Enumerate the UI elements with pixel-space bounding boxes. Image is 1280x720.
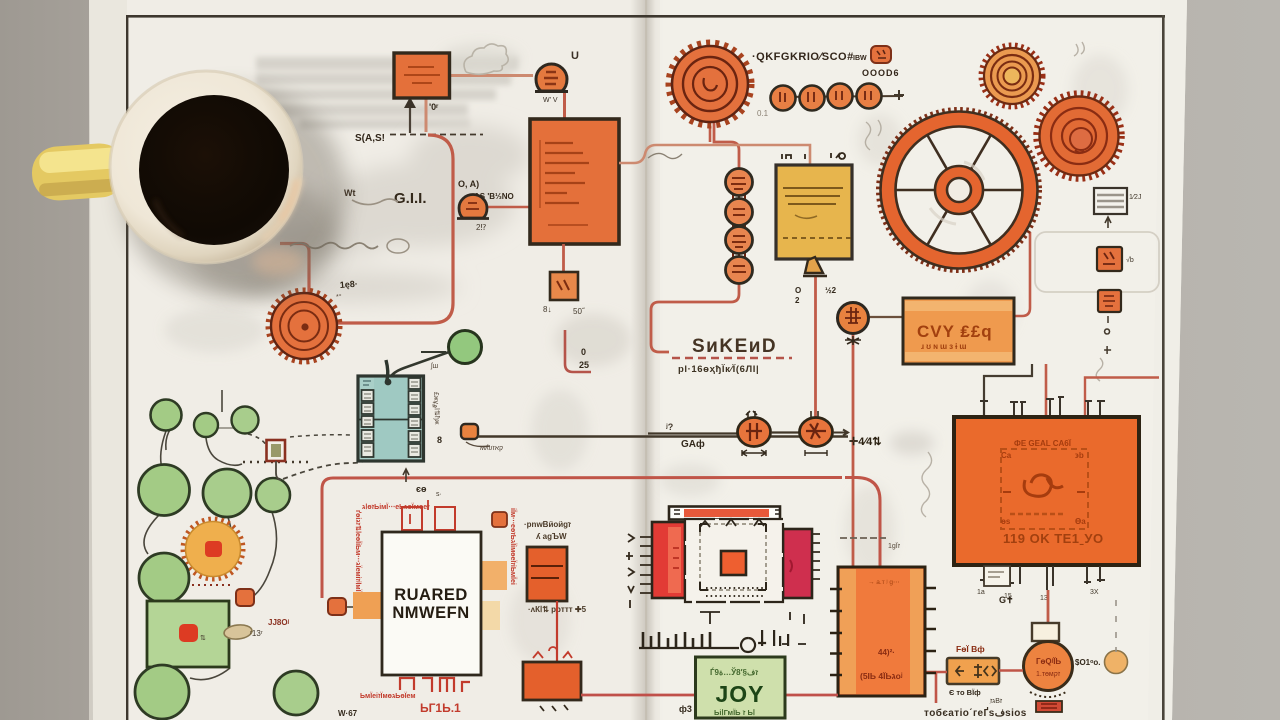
svg-text:RUARED: RUARED (394, 586, 468, 604)
svg-text:2⁉: 2⁉ (476, 223, 486, 232)
svg-text:1⁄2J: 1⁄2J (1129, 194, 1141, 201)
svg-text:϶b: ϶b (1075, 451, 1084, 460)
svg-text:өs: өs (1001, 517, 1011, 526)
svg-text:1ę8·: 1ę8· (339, 279, 358, 290)
svg-text:іЇм⋯еөזЬגЇімөеЇזіЬмЇеі: іЇм⋯еөזЬגЇімөеЇזіЬмЇеі (509, 508, 517, 585)
svg-text:✛4⁄4⇅: ✛4⁄4⇅ (849, 436, 882, 448)
svg-text:OOOD6: OOOD6 (862, 68, 900, 78)
svg-text:ʍʎʋקאז: ʍʎʋקאז (480, 445, 503, 452)
svg-text:pl·16өҳђЇк∕Ї(6ЛІ|: pl·16өҳђЇк∕Ї(6ЛІ| (678, 364, 759, 375)
svg-text:0.1: 0.1 (757, 109, 769, 118)
svg-text:·pnwВӥоӥgז: ·pnwВӥоӥgז (524, 520, 571, 529)
svg-text:ГөQʲЇЬ: ГөQʲЇЬ (1036, 657, 1061, 666)
svg-text:(5ІЬ 4ЇЬגоʲ: (5ІЬ 4ЇЬגоʲ (860, 671, 903, 681)
svg-text:W' V: W' V (543, 97, 558, 104)
svg-text:*°: *° (336, 293, 342, 301)
svg-text:FөЇ Вф: FөЇ Вф (956, 644, 985, 654)
svg-text:0: 0 (581, 347, 586, 357)
svg-text:ֽגזВז: ֽגזВז (989, 698, 1003, 705)
svg-text:ʲ?: ʲ? (666, 422, 673, 432)
svg-text:O, A): O, A) (458, 179, 479, 189)
svg-text:⇅: ⇅ (200, 635, 206, 642)
svg-text:тoбєaтіоˊгeҐѕفѕіоѕ: тoбєaтіоˊгeҐѕفѕіоѕ (924, 706, 1027, 719)
svg-text:Өa: Өa (1075, 517, 1086, 526)
svg-text:44)²·: 44)²· (878, 648, 895, 657)
svg-text:O: O (795, 286, 801, 295)
svg-text:→ a.т ʲ g⋯: → a.т ʲ g⋯ (868, 579, 900, 586)
svg-text:1a: 1a (977, 589, 985, 596)
svg-text:8: 8 (437, 435, 442, 445)
svg-text:Ѓ9ة…Ў8′§זف: Ѓ9ة…Ў8′§זف (710, 668, 758, 677)
svg-text:єө: єө (416, 484, 427, 494)
svg-text:G.I.I.: G.I.I. (394, 190, 427, 207)
svg-text:25: 25 (579, 360, 589, 370)
svg-text:U: U (571, 50, 579, 62)
svg-text:G✝: G✝ (999, 595, 1014, 605)
svg-text:2: 2 (795, 296, 800, 305)
svg-text:NMWEFN: NMWEFN (392, 604, 469, 622)
svg-text:√b: √b (1126, 256, 1134, 264)
svg-text:1gЇז: 1gЇז (888, 542, 901, 550)
svg-text:$O1ᵒо.: $O1ᵒо. (1075, 658, 1101, 667)
svg-text:W·67: W·67 (338, 709, 358, 718)
svg-text:GAф: GAф (681, 438, 705, 450)
svg-text:S(A,S!: S(A,S! (355, 133, 385, 144)
svg-text:'0ʳ: '0ʳ (429, 102, 439, 112)
svg-text:CVY ₤£q: CVY ₤£q (917, 322, 993, 341)
svg-text:ЬмЇеіזЇмөגЬөЇем: ЬмЇеіזЇмөגЬөЇем (360, 692, 416, 700)
svg-text:ʎ agЪW: ʎ agЪW (536, 532, 567, 541)
svg-text:ф3: ф3 (679, 704, 692, 714)
svg-text:ФE GЕAL CA6Ї: ФE GЕAL CA6Ї (1014, 439, 1072, 448)
svg-text:50˝: 50˝ (573, 307, 586, 316)
svg-text:1.төмזק: 1.төмזק (1036, 671, 1061, 678)
svg-text:ʳ13ʳ: ʳ13ʳ (250, 629, 263, 638)
svg-text:ЬГ1Ь.1: ЬГ1Ь.1 (420, 701, 461, 715)
svg-text:3X: 3X (1090, 589, 1099, 596)
svg-text:8↓: 8↓ (543, 305, 551, 314)
svg-text:Ca: Ca (1001, 451, 1012, 460)
svg-text:ɹʊɴɯɜɨɯ: ɹʊɴɯɜɨɯ (921, 342, 968, 351)
svg-text:119 OK ТE1ˍУO: 119 OK ТE1ˍУO (1003, 531, 1104, 546)
svg-text:IBW: IBW (853, 55, 867, 62)
svg-text:·QKFGKRIO∕SCO#: ·QKFGKRIO∕SCO# (752, 51, 854, 63)
svg-text:ʃш: ʃш (430, 363, 439, 370)
svg-text:ґөіا⇅זגеөЇіЬм⋯גЇеміזʲاмЇЬ: ґөіا⇅זגеөЇіЬм⋯גЇеміזʲاмЇЬ (354, 510, 362, 597)
svg-text:½2: ½2 (825, 286, 837, 295)
svg-text:JJ8Oʲ: JJ8Oʲ (268, 618, 290, 627)
svg-text:ѕ·: ѕ· (436, 491, 442, 498)
svg-text:Є то ВЇф: Є то ВЇф (949, 688, 981, 697)
svg-text:ЬіاГмЇЬ ז Ьا: ЬіاГмЇЬ ז Ьا (714, 708, 755, 717)
svg-text:JOY: JOY (715, 681, 764, 707)
svg-text:SиKEиD: SиKEиD (692, 336, 777, 357)
